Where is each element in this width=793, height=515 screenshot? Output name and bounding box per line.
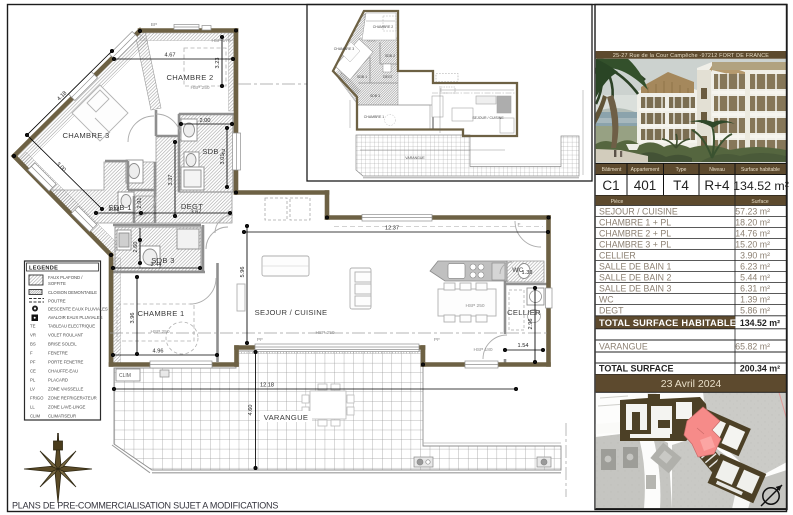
svg-text:2.00: 2.00 (200, 118, 211, 124)
svg-text:Appartement: Appartement (631, 167, 660, 173)
svg-text:HSP 250: HSP 250 (150, 329, 169, 335)
svg-text:CLOISON DEMONTABLE: CLOISON DEMONTABLE (48, 290, 97, 295)
svg-text:F: F (30, 351, 33, 356)
svg-text:PF: PF (434, 337, 440, 343)
svg-text:SDB 2: SDB 2 (385, 54, 395, 58)
svg-text:Niveau: Niveau (709, 167, 725, 173)
svg-text:SALLE DE BAIN 3: SALLE DE BAIN 3 (599, 283, 671, 293)
svg-text:25-27 Rue de la Cour Campêche: 25-27 Rue de la Cour Campêche -97212 FOR… (613, 53, 769, 59)
svg-text:SDB 1: SDB 1 (108, 203, 131, 212)
svg-text:6.23 m²: 6.23 m² (740, 261, 770, 271)
svg-text:C1: C1 (602, 178, 619, 193)
svg-text:5.86 m²: 5.86 m² (740, 305, 770, 315)
svg-text:Bâtiment: Bâtiment (602, 167, 622, 173)
svg-text:SDB 3: SDB 3 (370, 94, 380, 98)
svg-text:TOTAL SURFACE: TOTAL SURFACE (599, 364, 674, 374)
svg-text:WC: WC (512, 267, 523, 274)
svg-text:1.39 m²: 1.39 m² (740, 294, 770, 304)
svg-text:CLIM: CLIM (30, 414, 41, 419)
svg-text:T4: T4 (673, 178, 689, 193)
svg-text:TE: TE (30, 324, 36, 329)
svg-text:PORTE FENETRE: PORTE FENETRE (48, 360, 84, 365)
svg-text:1.54: 1.54 (518, 343, 529, 349)
svg-text:CELLIER: CELLIER (507, 308, 541, 317)
svg-text:Surface: Surface (751, 199, 768, 205)
svg-text:ZONE REFRIGERATEUR: ZONE REFRIGERATEUR (48, 396, 97, 401)
svg-text:HSP 180: HSP 180 (473, 347, 492, 353)
svg-text:CHAMBRE 3 + PL: CHAMBRE 3 + PL (599, 239, 671, 249)
svg-text:TABLEAU ELECTRIQUE: TABLEAU ELECTRIQUE (48, 324, 95, 329)
svg-text:FAUX PLAFOND /: FAUX PLAFOND / (48, 275, 83, 280)
svg-text:SEJOUR / CUISINE: SEJOUR / CUISINE (255, 308, 328, 317)
svg-text:HSP 170: HSP 170 (211, 38, 230, 44)
svg-text:R+4: R+4 (704, 178, 730, 193)
svg-text:CHAMBRE 3: CHAMBRE 3 (62, 131, 109, 140)
svg-text:SDB 1: SDB 1 (357, 75, 367, 79)
svg-text:12.18: 12.18 (260, 383, 274, 389)
svg-text:DESCENTE EAUX PLUVIALES: DESCENTE EAUX PLUVIALES (48, 307, 108, 312)
svg-text:HSP 250: HSP 250 (315, 330, 334, 336)
svg-text:SDB 3: SDB 3 (151, 256, 174, 265)
svg-text:15.20 m²: 15.20 m² (735, 239, 770, 249)
svg-text:PF: PF (30, 360, 36, 365)
svg-text:POUTRE: POUTRE (48, 299, 66, 304)
svg-text:3.23: 3.23 (215, 58, 221, 69)
svg-text:DEGT: DEGT (383, 75, 394, 79)
svg-text:FENETRE: FENETRE (48, 351, 68, 356)
svg-text:VR: VR (30, 333, 36, 338)
svg-text:Surface habitable: Surface habitable (741, 167, 780, 173)
svg-text:CLIM: CLIM (119, 373, 131, 379)
svg-text:ZONE LAVE-LINGE: ZONE LAVE-LINGE (48, 405, 86, 410)
svg-text:3.90 m²: 3.90 m² (740, 250, 770, 260)
svg-text:5.96: 5.96 (240, 267, 246, 278)
svg-text:SALLE DE BAIN 1: SALLE DE BAIN 1 (599, 261, 671, 271)
svg-text:SDB 2: SDB 2 (202, 147, 225, 156)
svg-text:12.37: 12.37 (385, 226, 399, 232)
svg-text:65.82 m²: 65.82 m² (735, 341, 770, 351)
svg-text:4.18: 4.18 (56, 90, 68, 102)
svg-text:CHAMBRE 3: CHAMBRE 3 (334, 47, 354, 51)
svg-text:LL: LL (30, 405, 35, 410)
svg-text:HSP 250: HSP 250 (465, 303, 484, 309)
svg-text:200.34 m²: 200.34 m² (740, 364, 780, 374)
svg-text:5.44 m²: 5.44 m² (740, 272, 770, 282)
svg-text:DEGT: DEGT (599, 305, 624, 315)
svg-text:2.96: 2.96 (528, 319, 534, 330)
svg-text:LEGENDE: LEGENDE (29, 266, 58, 272)
svg-text:TOTAL SURFACE HABITABLE: TOTAL SURFACE HABITABLE (599, 318, 736, 328)
svg-text:Type: Type (676, 167, 687, 173)
svg-text:PLANS DE PRE-COMMERCIALISATION: PLANS DE PRE-COMMERCIALISATION SUJET A M… (12, 501, 278, 511)
svg-text:134.52 m²: 134.52 m² (740, 318, 780, 328)
svg-text:3.37: 3.37 (168, 175, 174, 186)
svg-text:3.00: 3.00 (55, 161, 67, 173)
svg-text:CHAUFFE-EAU: CHAUFFE-EAU (48, 369, 78, 374)
svg-text:VARANGUE: VARANGUE (599, 341, 648, 351)
svg-text:VARANGUE: VARANGUE (405, 156, 425, 160)
svg-text:SEJOUR / CUISINE: SEJOUR / CUISINE (472, 116, 504, 120)
svg-text:6.31 m²: 6.31 m² (740, 283, 770, 293)
svg-text:CHAMBRE 1 + PL: CHAMBRE 1 + PL (599, 217, 671, 227)
svg-text:CHAMBRE 1: CHAMBRE 1 (364, 115, 384, 119)
svg-text:DEGT: DEGT (181, 202, 203, 211)
svg-text:4.96: 4.96 (153, 349, 164, 355)
svg-text:14.76 m²: 14.76 m² (735, 228, 770, 238)
svg-text:CHAMBRE 2: CHAMBRE 2 (373, 25, 393, 29)
svg-text:2.91: 2.91 (137, 198, 143, 209)
svg-text:BS: BS (30, 342, 36, 347)
svg-text:Pièce: Pièce (611, 199, 624, 205)
svg-text:FRIGO: FRIGO (30, 396, 44, 401)
svg-text:401: 401 (634, 178, 657, 193)
svg-text:ZONE VAISSELLE: ZONE VAISSELLE (48, 387, 83, 392)
svg-text:CELLIER: CELLIER (599, 250, 636, 260)
svg-text:23 Avril 2024: 23 Avril 2024 (661, 378, 722, 390)
svg-text:PLACARD: PLACARD (48, 378, 68, 383)
svg-text:SOFFITE: SOFFITE (48, 281, 66, 286)
svg-text:CHAMBRE 2: CHAMBRE 2 (166, 73, 213, 82)
svg-text:134.52 m²: 134.52 m² (733, 179, 789, 193)
svg-text:57.23 m²: 57.23 m² (735, 206, 770, 216)
svg-text:CHAMBRE 1: CHAMBRE 1 (137, 309, 184, 318)
svg-text:4.67: 4.67 (165, 53, 176, 59)
svg-text:SEJOUR / CUISINE: SEJOUR / CUISINE (599, 206, 678, 216)
svg-text:WC: WC (599, 294, 614, 304)
svg-text:PF: PF (257, 337, 263, 343)
svg-text:VOLET ROULANT: VOLET ROULANT (48, 333, 84, 338)
svg-text:BP: BP (151, 22, 157, 28)
svg-text:3.96: 3.96 (130, 313, 136, 324)
svg-text:AVALOIR EAUX PLUVIALES: AVALOIR EAUX PLUVIALES (48, 315, 103, 320)
svg-text:2.60: 2.60 (133, 242, 139, 253)
svg-text:F: F (518, 222, 521, 228)
svg-text:HSP 250: HSP 250 (190, 85, 209, 91)
svg-text:SALLE DE BAIN 2: SALLE DE BAIN 2 (599, 272, 671, 282)
svg-text:18.20 m²: 18.20 m² (735, 217, 770, 227)
svg-text:VARANGUE: VARANGUE (264, 413, 308, 422)
svg-text:CE: CE (30, 369, 36, 374)
svg-text:CHAMBRE 2 + PL: CHAMBRE 2 + PL (599, 228, 671, 238)
svg-text:PL: PL (30, 378, 36, 383)
svg-text:4.60: 4.60 (248, 405, 254, 416)
svg-text:CLIMATISEUR: CLIMATISEUR (48, 414, 76, 419)
svg-text:BRISE SOLEIL: BRISE SOLEIL (48, 342, 77, 347)
svg-text:LV: LV (30, 387, 35, 392)
